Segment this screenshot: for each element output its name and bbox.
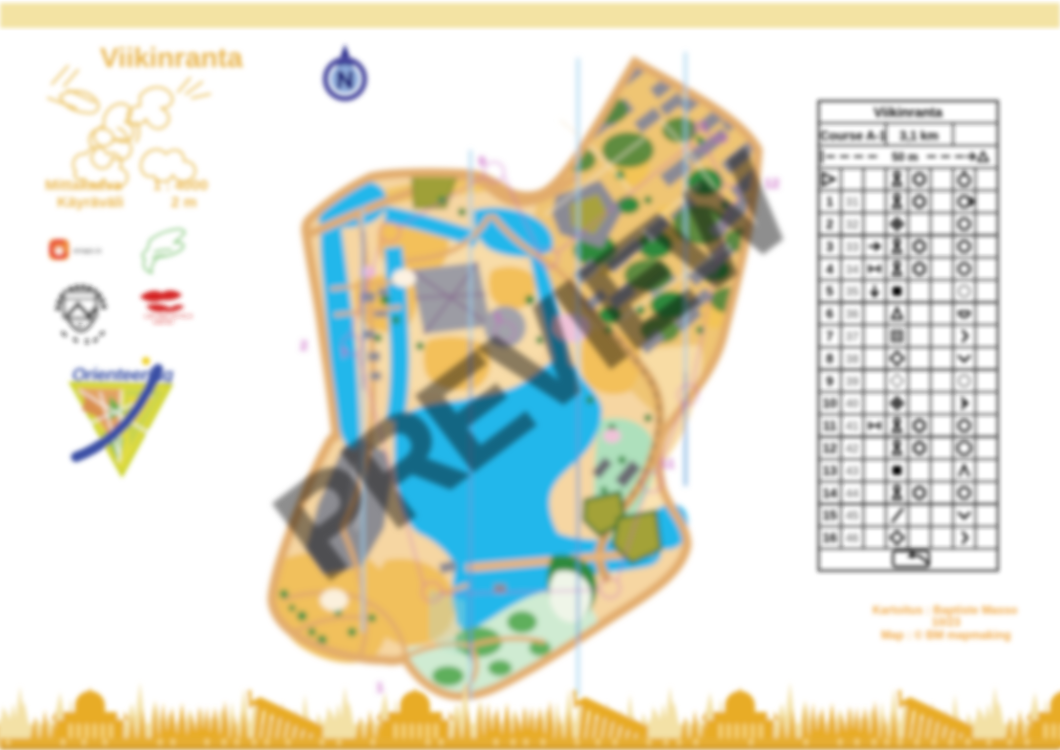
- svg-text:5: 5: [826, 284, 833, 299]
- svg-text:omaps.io: omaps.io: [73, 248, 102, 255]
- svg-text:8: 8: [826, 351, 833, 366]
- svg-text:4: 4: [826, 261, 834, 276]
- svg-text:2: 2: [300, 337, 308, 353]
- svg-text:9: 9: [826, 373, 833, 388]
- svg-text:Mittakaava: Mittakaava: [45, 177, 122, 194]
- svg-text:15: 15: [692, 118, 708, 134]
- svg-text:Kartoitus : Baptiste Masso: Kartoitus : Baptiste Masso: [872, 605, 1017, 617]
- svg-text:39: 39: [846, 376, 859, 388]
- svg-text:38: 38: [846, 354, 859, 366]
- svg-text:1 : 4000: 1 : 4000: [153, 177, 208, 194]
- svg-text:34: 34: [846, 264, 859, 276]
- svg-text:15: 15: [823, 508, 837, 523]
- svg-text:41: 41: [846, 421, 859, 433]
- svg-text:Course A-1: Course A-1: [820, 129, 886, 143]
- svg-text:11: 11: [823, 418, 837, 433]
- svg-text:42: 42: [846, 444, 859, 456]
- svg-text:43: 43: [846, 466, 859, 478]
- svg-text:35: 35: [846, 287, 859, 299]
- svg-text:Map : © BM mapmaking: Map : © BM mapmaking: [881, 630, 1011, 642]
- svg-text:45: 45: [846, 511, 859, 523]
- svg-text:Viikinranta: Viikinranta: [874, 105, 943, 120]
- svg-text:N: N: [336, 67, 353, 94]
- svg-text:7: 7: [826, 329, 833, 344]
- svg-text:40: 40: [846, 399, 859, 411]
- svg-text:7: 7: [340, 345, 348, 361]
- svg-text:36: 36: [846, 309, 859, 321]
- svg-text:44: 44: [846, 488, 859, 500]
- svg-text:· KARTAT ·: · KARTAT ·: [150, 320, 178, 326]
- svg-text:6: 6: [826, 306, 833, 321]
- svg-text:13: 13: [823, 463, 837, 478]
- svg-text:3,1 km: 3,1 km: [900, 129, 939, 143]
- svg-text:10/23: 10/23: [932, 617, 961, 629]
- svg-text:2: 2: [826, 217, 833, 232]
- svg-text:12: 12: [823, 441, 837, 456]
- svg-text:37: 37: [846, 332, 859, 344]
- svg-text:46: 46: [846, 533, 859, 545]
- svg-text:9: 9: [478, 153, 486, 169]
- svg-text:10: 10: [823, 396, 837, 411]
- svg-text:32: 32: [846, 220, 859, 232]
- svg-text:1: 1: [376, 679, 384, 695]
- svg-text:1: 1: [826, 194, 833, 209]
- svg-text:3: 3: [826, 239, 833, 254]
- svg-text:2 m: 2 m: [171, 194, 197, 211]
- svg-text:Käyräväli: Käyräväli: [57, 194, 124, 211]
- svg-text:16: 16: [823, 530, 837, 545]
- svg-text:31: 31: [846, 197, 859, 209]
- svg-text:14: 14: [823, 485, 838, 500]
- svg-text:11: 11: [660, 455, 675, 471]
- svg-text:50 m: 50 m: [892, 152, 918, 164]
- svg-text:Viikinranta: Viikinranta: [100, 42, 243, 73]
- svg-text:33: 33: [846, 242, 859, 254]
